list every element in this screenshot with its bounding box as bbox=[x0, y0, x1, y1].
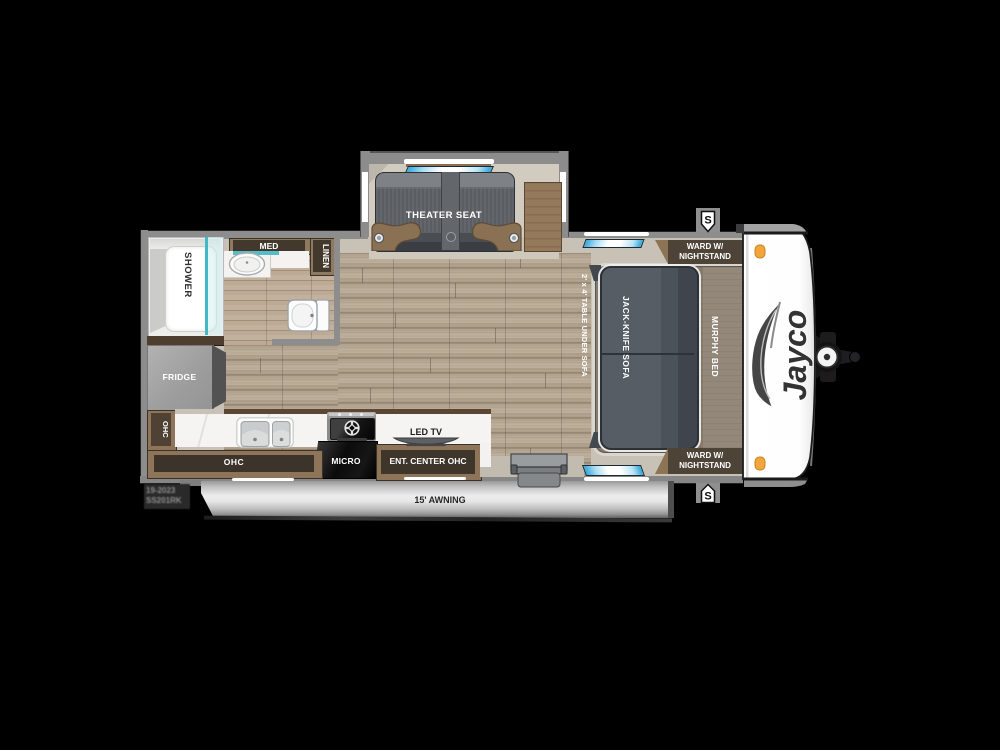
svg-text:S: S bbox=[704, 215, 711, 227]
svg-text:S: S bbox=[704, 491, 711, 503]
svg-text:Jayco: Jayco bbox=[777, 310, 813, 401]
